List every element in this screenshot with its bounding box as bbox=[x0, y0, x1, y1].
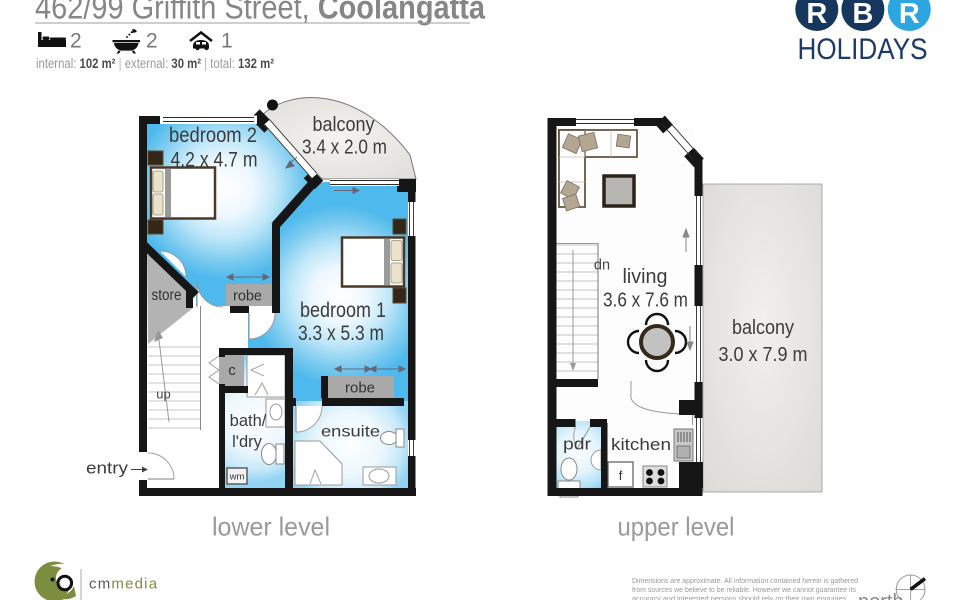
svg-text:R: R bbox=[899, 0, 920, 30]
svg-text:HOLIDAYS: HOLIDAYS bbox=[798, 33, 928, 66]
svg-text:1: 1 bbox=[221, 30, 233, 53]
svg-text:c: c bbox=[228, 362, 236, 379]
svg-text:robe: robe bbox=[233, 289, 262, 305]
svg-text:3.4 x 2.0 m: 3.4 x 2.0 m bbox=[302, 137, 387, 159]
svg-text:Dimensions are approximate. A: Dimensions are approximate. All informat… bbox=[632, 576, 858, 585]
svg-text:B: B bbox=[852, 0, 873, 30]
svg-text:3.0 x 7.9 m: 3.0 x 7.9 m bbox=[719, 343, 808, 366]
svg-text:3.3 x 5.3 m: 3.3 x 5.3 m bbox=[298, 322, 384, 345]
svg-text:ensuite: ensuite bbox=[321, 424, 380, 441]
svg-text:store: store bbox=[152, 287, 182, 304]
svg-text:internal: 102 m² | external:: internal: 102 m² | external: 30 m² | tot… bbox=[36, 55, 274, 71]
svg-text:bedroom 1: bedroom 1 bbox=[300, 299, 386, 322]
svg-text:cmmedia: cmmedia bbox=[89, 576, 158, 593]
svg-text:balcony: balcony bbox=[313, 114, 375, 136]
svg-text:l'dry: l'dry bbox=[232, 433, 262, 451]
svg-text:robe: robe bbox=[345, 381, 375, 397]
svg-text:upper level: upper level bbox=[618, 512, 735, 542]
svg-text:R: R bbox=[806, 0, 827, 30]
svg-text:4.2 x 4.7 m: 4.2 x 4.7 m bbox=[171, 149, 258, 172]
svg-text:kitchen: kitchen bbox=[611, 435, 671, 454]
svg-text:2: 2 bbox=[146, 30, 158, 53]
svg-text:bedroom 2: bedroom 2 bbox=[169, 124, 257, 147]
svg-text:up: up bbox=[156, 387, 170, 402]
svg-text:2: 2 bbox=[70, 30, 82, 53]
svg-text:3.6 x 7.6 m: 3.6 x 7.6 m bbox=[603, 289, 688, 312]
svg-text:from sources we believe to be: from sources we believe to be reliable. … bbox=[632, 585, 856, 594]
svg-text:wm: wm bbox=[229, 472, 245, 483]
svg-text:balcony: balcony bbox=[732, 316, 795, 339]
svg-text:pdr: pdr bbox=[563, 435, 591, 454]
svg-text:dn: dn bbox=[594, 258, 610, 274]
svg-text:accuracy and interested person: accuracy and interested persons should r… bbox=[632, 594, 846, 600]
svg-text:entry: entry bbox=[86, 460, 129, 478]
svg-text:bath/: bath/ bbox=[230, 412, 267, 430]
svg-text:f: f bbox=[619, 468, 623, 483]
svg-text:lower level: lower level bbox=[212, 512, 330, 542]
svg-text:living: living bbox=[623, 266, 668, 288]
svg-text:462/99 Griffith Street, Coolan: 462/99 Griffith Street, Coolangatta bbox=[35, 0, 486, 26]
